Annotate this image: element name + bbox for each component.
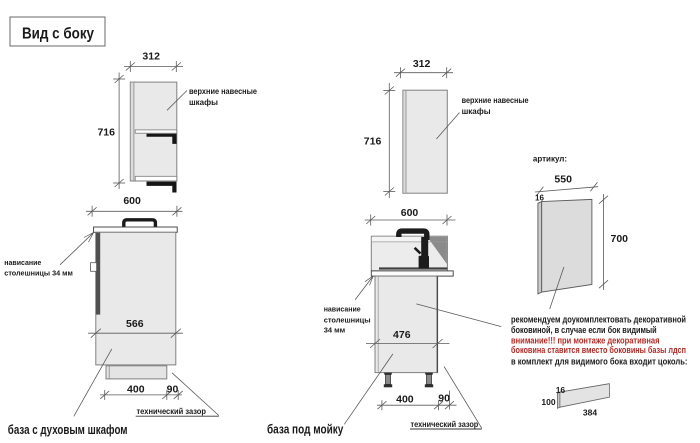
- svg-text:нависание: нависание: [4, 258, 41, 267]
- svg-text:16: 16: [556, 385, 566, 395]
- svg-text:технический зазор: технический зазор: [137, 407, 207, 416]
- svg-text:550: 550: [554, 174, 572, 186]
- svg-text:верхние навесные: верхние навесные: [189, 87, 257, 96]
- svg-text:312: 312: [413, 58, 431, 70]
- svg-text:16: 16: [535, 193, 544, 202]
- svg-text:400: 400: [127, 383, 145, 395]
- svg-text:технический зазор: технический зазор: [411, 420, 479, 429]
- svg-text:столешницы 34 мм: столешницы 34 мм: [4, 268, 73, 277]
- svg-text:база под мойку: база под мойку: [267, 421, 344, 436]
- svg-text:700: 700: [611, 233, 629, 245]
- svg-text:внимание!!! при монтаже декора: внимание!!! при монтаже декоративная: [511, 335, 660, 345]
- svg-text:верхние навесные: верхние навесные: [462, 96, 529, 105]
- svg-text:шкафы: шкафы: [189, 98, 218, 107]
- svg-text:476: 476: [393, 329, 411, 341]
- svg-text:716: 716: [97, 126, 115, 138]
- svg-text:312: 312: [142, 51, 160, 63]
- svg-text:столешницы: столешницы: [324, 315, 371, 324]
- svg-text:100: 100: [541, 397, 555, 407]
- svg-text:шкафы: шкафы: [462, 107, 491, 116]
- svg-text:боковиной, в случае если бок в: боковиной, в случае если бок видимый: [511, 325, 657, 335]
- svg-text:боковина ставится вместо боков: боковина ставится вместо боковины базы л…: [511, 345, 686, 355]
- svg-text:400: 400: [396, 393, 414, 405]
- svg-text:34 мм: 34 мм: [324, 325, 346, 334]
- svg-text:Вид с боку: Вид с боку: [22, 26, 94, 43]
- svg-text:600: 600: [123, 195, 141, 207]
- svg-text:база с духовым шкафом: база с духовым шкафом: [8, 422, 128, 437]
- svg-text:артикул:: артикул:: [533, 154, 567, 163]
- svg-text:566: 566: [126, 318, 144, 330]
- svg-text:90: 90: [438, 393, 450, 405]
- svg-text:рекомендуем доукомплектовать д: рекомендуем доукомплектовать декоративно…: [511, 315, 686, 325]
- svg-text:90: 90: [167, 383, 179, 395]
- svg-text:600: 600: [401, 207, 419, 219]
- svg-text:нависание: нависание: [324, 305, 361, 314]
- svg-text:в комплект для видимого бока в: в комплект для видимого бока входит цоко…: [511, 356, 687, 366]
- svg-text:384: 384: [583, 408, 597, 418]
- svg-text:716: 716: [364, 136, 382, 148]
